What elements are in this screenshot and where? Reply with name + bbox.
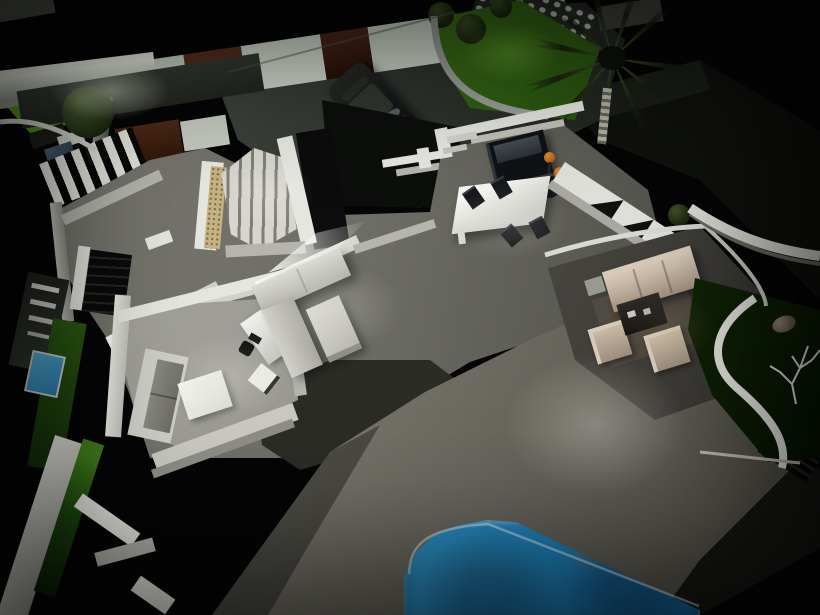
- night-render-scene: [0, 0, 820, 615]
- dead-tree-sculpture: [770, 346, 820, 404]
- terrace-parapet: [545, 226, 705, 255]
- detail-lines: [0, 0, 820, 615]
- pool-rim: [409, 524, 699, 606]
- s-curved-wall: [718, 298, 783, 468]
